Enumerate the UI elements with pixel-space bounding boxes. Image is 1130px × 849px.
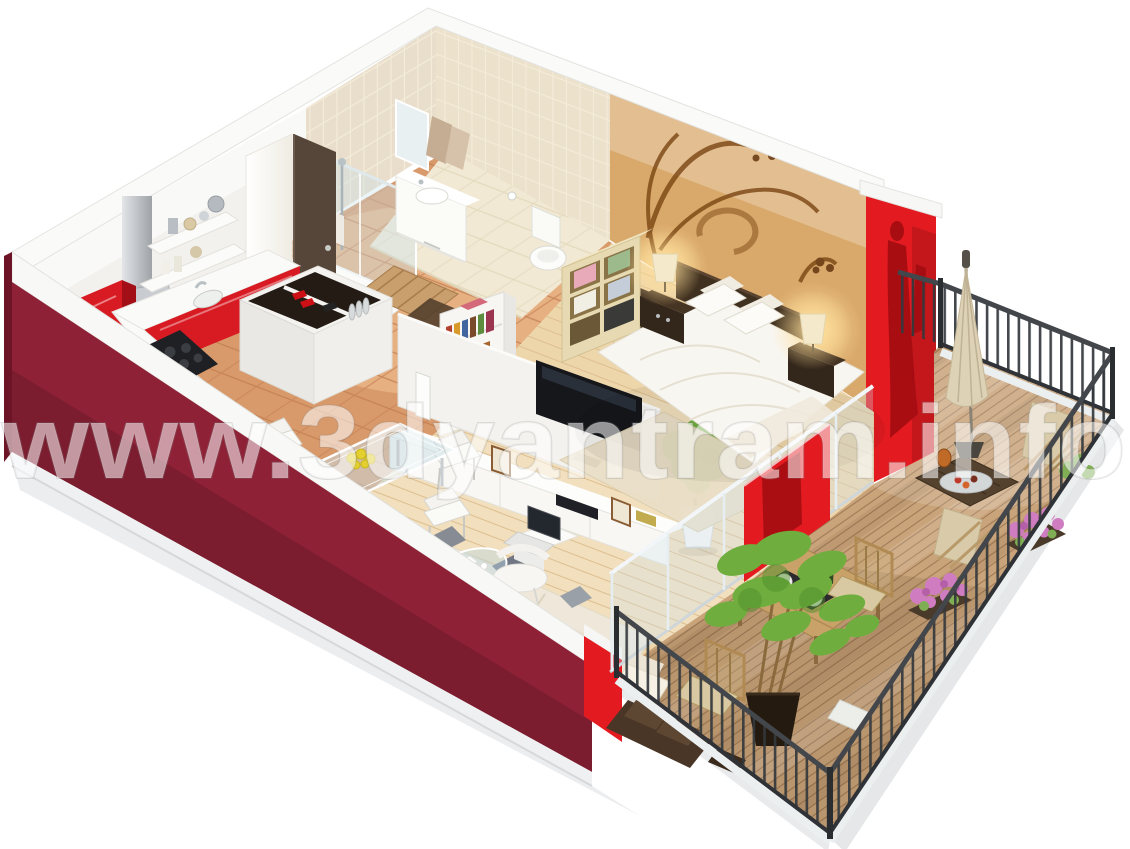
floorplan-svg: www.3dyantram.info <box>0 0 1130 849</box>
jar-icon <box>199 211 209 221</box>
steel-pot-icon <box>208 196 224 212</box>
floorplan-render: www.3dyantram.info <box>0 0 1130 849</box>
jar-icon <box>184 218 196 230</box>
faucet-icon <box>419 180 424 185</box>
candle-icon <box>174 256 182 272</box>
shower-head-icon <box>338 158 346 166</box>
door-handle-icon <box>325 245 331 251</box>
candle-icon <box>162 260 170 274</box>
watermark: www.3dyantram.info <box>1 385 1128 501</box>
sink <box>416 188 448 204</box>
canister-icon <box>168 218 178 234</box>
toilet-paper-icon <box>508 192 516 200</box>
jar-icon <box>190 246 202 258</box>
